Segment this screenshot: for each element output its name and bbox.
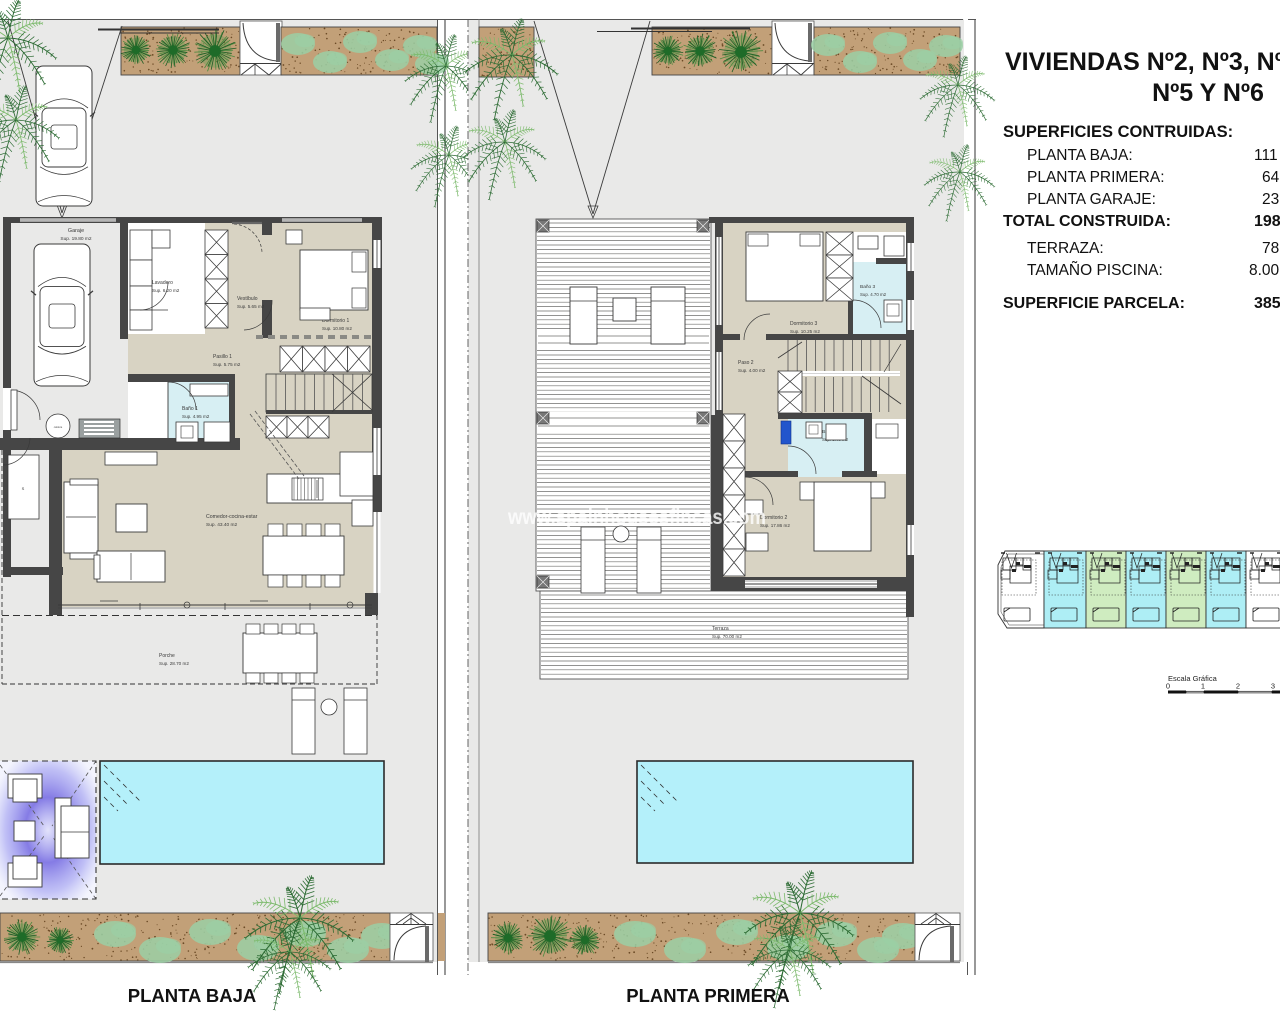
svg-text:Nº5 Y Nº6: Nº5 Y Nº6 [1152,79,1264,107]
svg-text:Sup. 28.70 m2: Sup. 28.70 m2 [159,661,189,666]
svg-text:SUPERFICIES CONTRUIDAS:: SUPERFICIES CONTRUIDAS: [1003,123,1233,141]
svg-text:Lavadero: Lavadero [152,280,173,286]
svg-text:3: 3 [1271,682,1275,691]
svg-text:TERRAZA:: TERRAZA: [1027,240,1104,257]
svg-text:Sup. 10.25 m2: Sup. 10.25 m2 [790,329,820,334]
svg-text:385 m2: 385 m2 [1254,295,1280,312]
svg-text:PLANTA GARAJE:: PLANTA GARAJE: [1027,191,1156,208]
svg-text:SUPERFICIE PARCELA:: SUPERFICIE PARCELA: [1003,295,1185,312]
svg-text:PLANTA BAJA: PLANTA BAJA [128,985,256,1006]
svg-text:8.00 m2: 8.00 m2 [1249,262,1280,279]
svg-text:Dormitorio 3: Dormitorio 3 [790,321,817,327]
svg-text:Sup. 10.80 m2: Sup. 10.80 m2 [322,326,352,331]
svg-text:Pasillo 1: Pasillo 1 [213,354,232,360]
svg-text:111 m2: 111 m2 [1254,147,1280,164]
svg-text:PLANTA PRIMERA: PLANTA PRIMERA [626,985,789,1006]
svg-text:Escala Gráfica: Escala Gráfica [1168,674,1218,683]
svg-text:Baño 3: Baño 3 [860,284,876,290]
svg-text:Sup. 4.00 m2: Sup. 4.00 m2 [738,368,766,373]
svg-text:64 m2: 64 m2 [1262,169,1280,186]
svg-text:198 m2: 198 m2 [1254,213,1280,230]
svg-text:Sup. 19.80 m2: Sup. 19.80 m2 [60,236,92,242]
svg-text:Sup. 43.40 m2: Sup. 43.40 m2 [206,522,238,528]
svg-text:Porche: Porche [159,653,175,659]
svg-text:1: 1 [1201,682,1205,691]
svg-text:0: 0 [1166,682,1170,691]
svg-text:S: S [22,486,25,491]
svg-text:PLANTA BAJA:: PLANTA BAJA: [1027,147,1133,164]
svg-text:2: 2 [1236,682,1240,691]
svg-text:Garaje: Garaje [68,228,84,234]
svg-text:VIVIENDAS Nº2, Nº3, Nº4,: VIVIENDAS Nº2, Nº3, Nº4, [1005,48,1280,76]
svg-text:Sup. 4.70 m2: Sup. 4.70 m2 [860,292,887,297]
svg-text:Sup. 5.65 m2: Sup. 5.65 m2 [237,304,265,309]
svg-text:Vestíbulo: Vestíbulo [237,296,258,302]
svg-text:TOTAL CONSTRUIDA:: TOTAL CONSTRUIDA: [1003,213,1171,230]
svg-text:caldera: caldera [54,425,63,429]
svg-text:Sup. 5.75 m2: Sup. 5.75 m2 [213,362,241,367]
svg-text:Comedor-cocina-estar: Comedor-cocina-estar [206,514,258,520]
svg-text:23 m2: 23 m2 [1262,191,1280,208]
svg-text:Terraza: Terraza [712,626,729,632]
svg-text:www.spainhousesfincas.com: www.spainhousesfincas.com [507,506,766,529]
svg-text:Sup. 70.00 m2: Sup. 70.00 m2 [712,634,742,639]
svg-text:Sup. 4.95 m2: Sup. 4.95 m2 [182,414,210,419]
svg-text:TAMAÑO PISCINA:: TAMAÑO PISCINA: [1027,262,1163,279]
svg-text:78 m2: 78 m2 [1262,240,1280,257]
svg-text:PLANTA PRIMERA:: PLANTA PRIMERA: [1027,169,1165,186]
svg-text:Paso 2: Paso 2 [738,360,754,366]
